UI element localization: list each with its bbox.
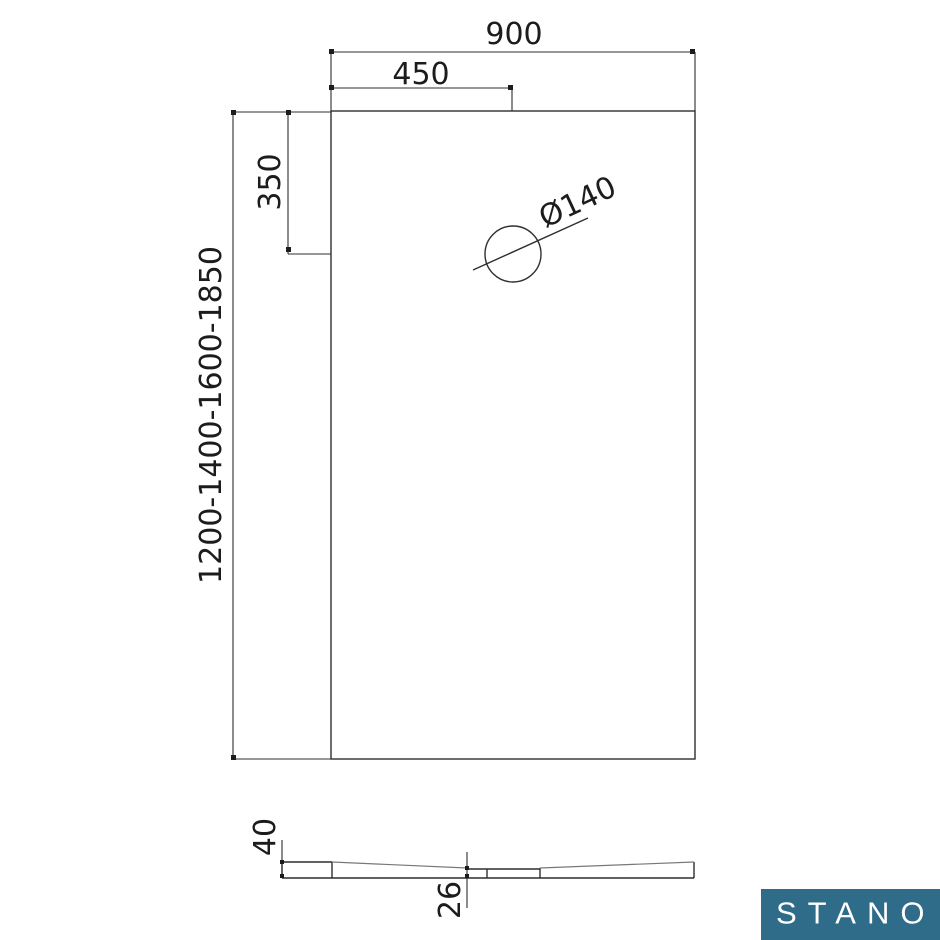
dimension-ticks <box>231 49 695 878</box>
profile-slope-right <box>540 862 694 868</box>
tray-outline <box>331 111 695 759</box>
brand-logo-text: STANO <box>776 895 936 931</box>
technical-drawing-page: 900 450 350 1200-1400-1600-1850 Ø140 40 … <box>0 0 940 940</box>
brand-logo: STANO <box>761 889 940 940</box>
drain-diameter-leader-line <box>473 218 588 270</box>
dim-label-half-width: 450 <box>392 60 449 90</box>
drain-circle <box>485 226 541 282</box>
dim-label-width: 900 <box>485 20 542 50</box>
dim-label-drain-offset: 350 <box>256 153 286 210</box>
dim-label-edge-thickness: 40 <box>251 818 281 856</box>
shower-tray-drawing <box>0 0 940 940</box>
dim-label-height-options: 1200-1400-1600-1850 <box>197 246 227 584</box>
profile-slope-left <box>332 862 467 868</box>
dim-label-drain-thickness: 26 <box>436 881 466 919</box>
